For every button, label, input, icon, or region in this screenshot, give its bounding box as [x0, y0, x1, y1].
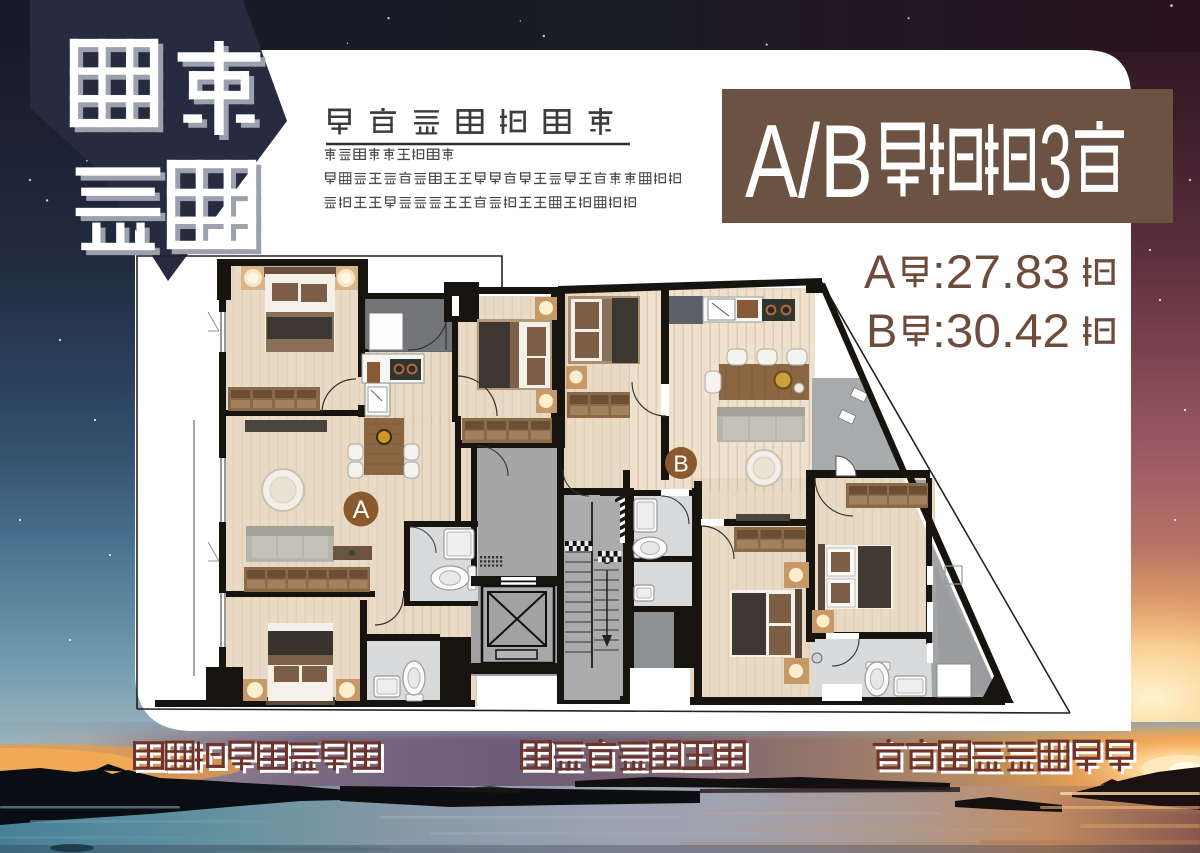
svg-text::27.83: :27.83: [932, 245, 1070, 298]
svg-text:A: A: [353, 496, 370, 524]
svg-text:B: B: [673, 451, 688, 477]
svg-text:3: 3: [1039, 104, 1072, 220]
svg-text:B: B: [866, 304, 897, 357]
svg-text:A: A: [864, 245, 896, 298]
svg-text:A/B: A/B: [745, 104, 873, 220]
svg-text::30.42: :30.42: [932, 304, 1070, 357]
